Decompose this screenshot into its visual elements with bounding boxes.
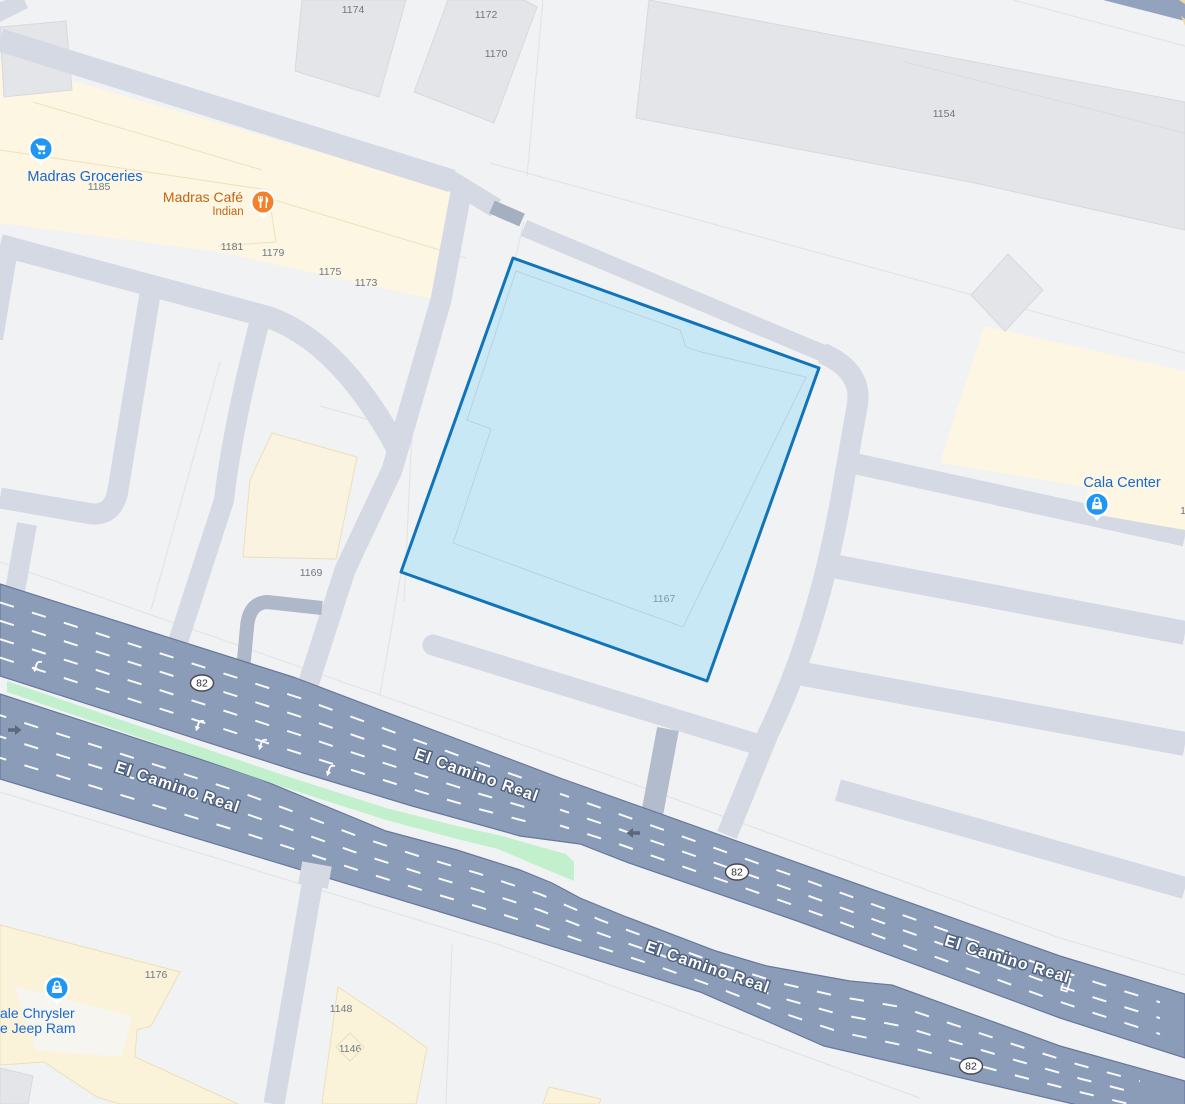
svg-text:1: 1 <box>1180 505 1185 517</box>
svg-text:82: 82 <box>965 1061 977 1073</box>
svg-text:1179: 1179 <box>262 247 285 259</box>
svg-text:Cala Center: Cala Center <box>1083 475 1161 491</box>
svg-text:1172: 1172 <box>475 9 498 21</box>
svg-text:Madras Café: Madras Café <box>163 189 243 205</box>
svg-text:1148: 1148 <box>330 1003 353 1015</box>
svg-text:82: 82 <box>731 867 743 879</box>
svg-text:ale Chrysler: ale Chrysler <box>0 1005 75 1021</box>
svg-text:1167: 1167 <box>653 593 676 605</box>
svg-text:1175: 1175 <box>319 266 342 278</box>
svg-text:1154: 1154 <box>933 108 956 120</box>
svg-text:Indian: Indian <box>212 206 243 218</box>
svg-text:1181: 1181 <box>221 241 244 253</box>
svg-text:1174: 1174 <box>342 4 365 16</box>
svg-text:1169: 1169 <box>300 567 323 579</box>
svg-text:1170: 1170 <box>485 48 508 60</box>
svg-text:1176: 1176 <box>145 969 168 981</box>
svg-text:1185: 1185 <box>88 181 111 193</box>
svg-text:1173: 1173 <box>355 277 378 289</box>
svg-text:e Jeep Ram: e Jeep Ram <box>0 1020 75 1036</box>
svg-text:Madras Groceries: Madras Groceries <box>27 169 142 185</box>
svg-text:82: 82 <box>196 678 208 690</box>
